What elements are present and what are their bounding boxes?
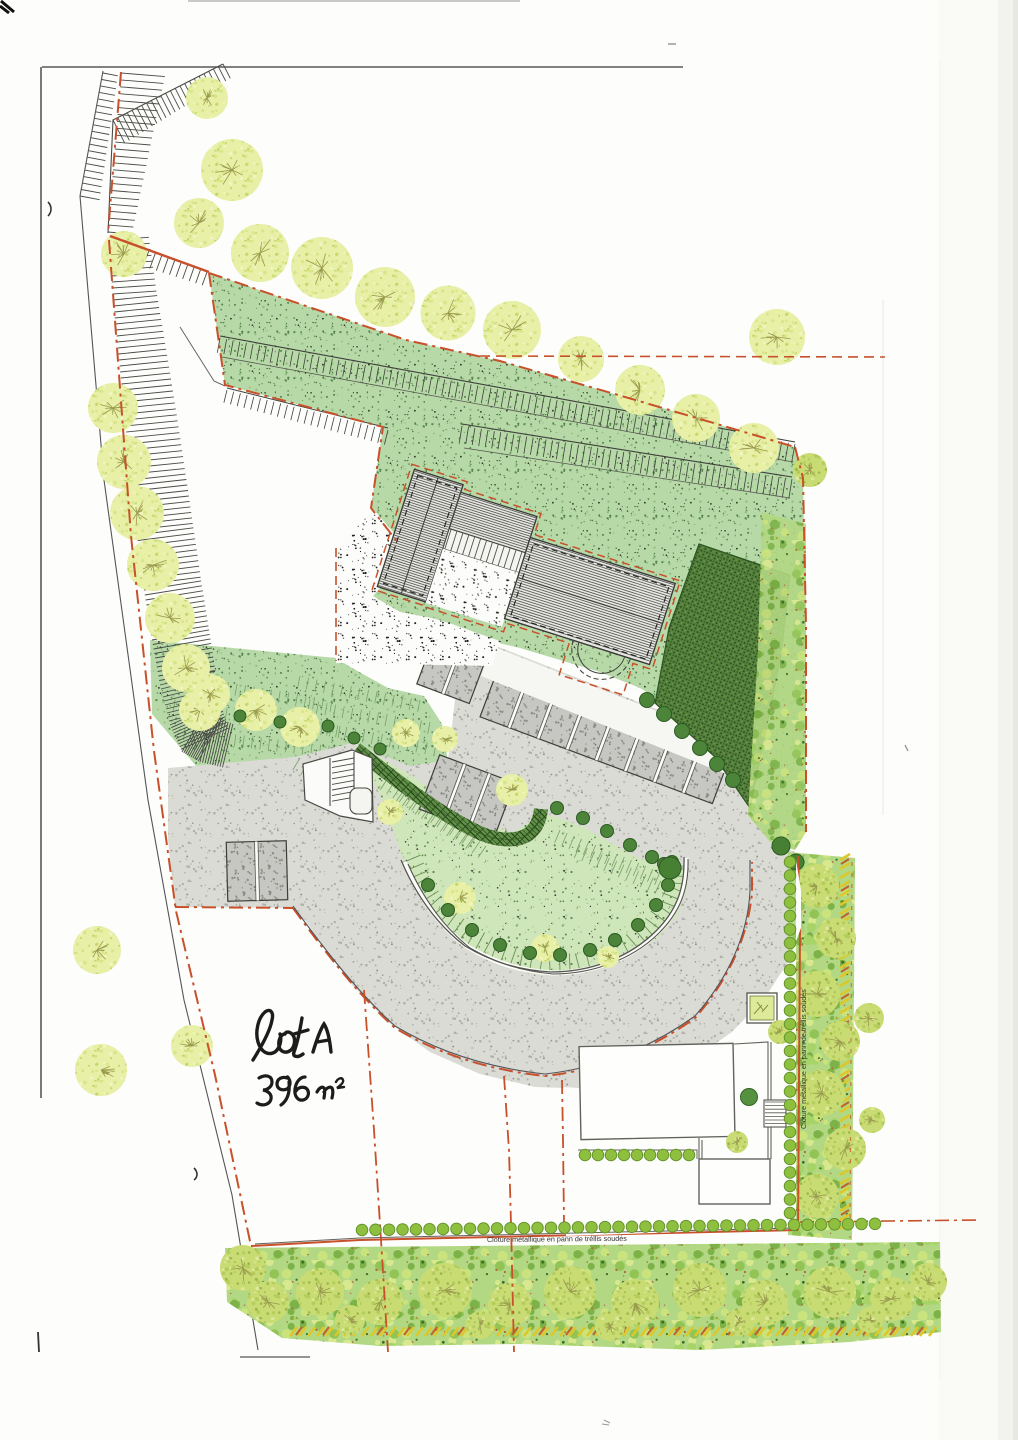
svg-text:Cloture métallique en pann de: Cloture métallique en pann de tréllis so…	[487, 1234, 627, 1244]
svg-text:Clôture métallique en pann de: Clôture métallique en pann de tréllis so…	[799, 989, 808, 1129]
